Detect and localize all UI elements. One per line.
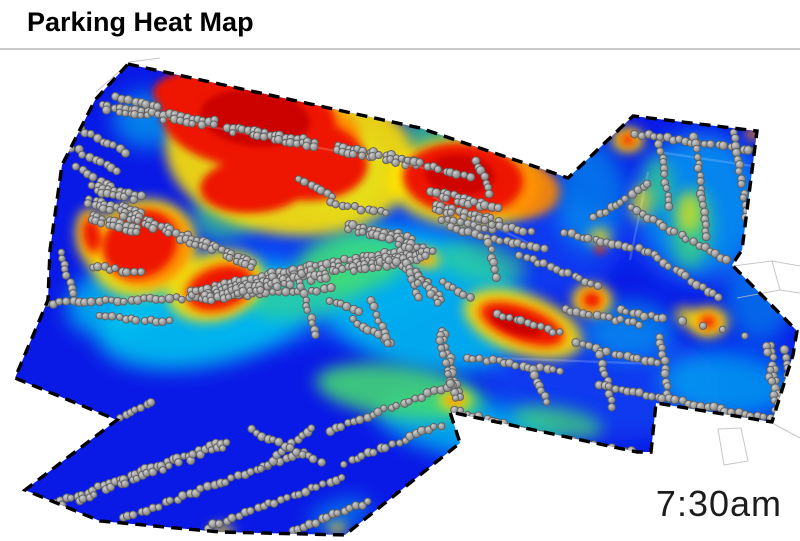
- page-title: Parking Heat Map: [27, 7, 254, 38]
- heat-map-canvas: [0, 0, 800, 541]
- time-label: 7:30am: [656, 483, 782, 525]
- title-divider: [0, 48, 800, 50]
- parking-heat-map-screen: Parking Heat Map 7:30am: [0, 0, 800, 541]
